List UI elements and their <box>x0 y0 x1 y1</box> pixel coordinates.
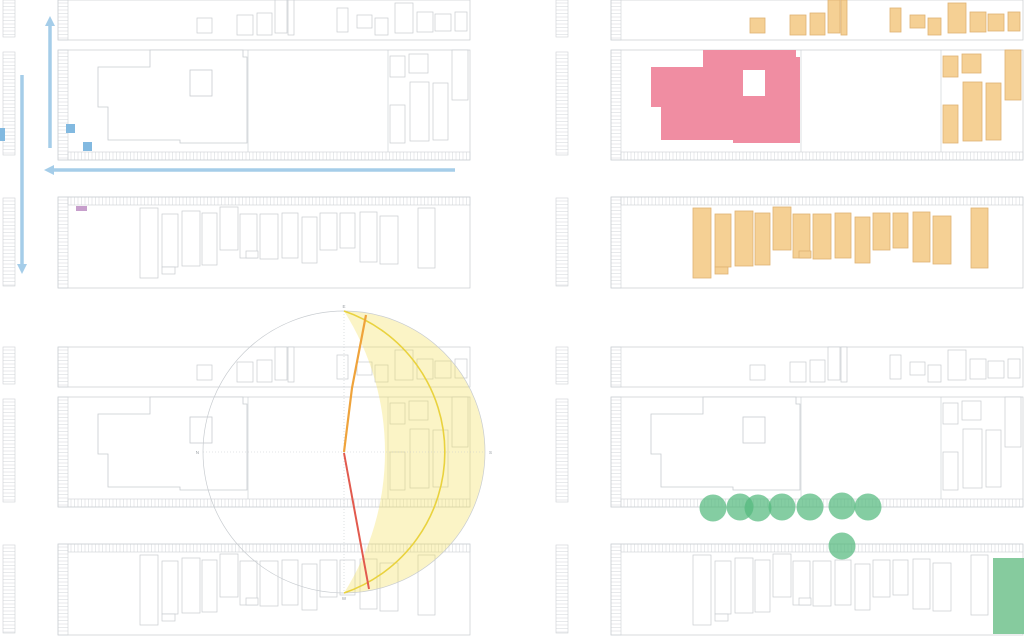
context-building <box>182 211 200 266</box>
context-building <box>410 82 429 141</box>
circulation-arrow <box>44 165 455 175</box>
compass-label: S <box>489 450 492 455</box>
context-building <box>202 213 217 265</box>
tree-marker <box>745 495 772 522</box>
context-building <box>435 14 451 31</box>
context-building <box>390 105 405 143</box>
context-building <box>237 362 253 382</box>
solar-path-map: ENSW <box>0 300 512 637</box>
tree-marker <box>829 493 856 520</box>
parking-strip <box>3 198 15 286</box>
context-building <box>943 56 958 77</box>
context-building <box>910 362 925 375</box>
context-building <box>282 213 298 258</box>
parking-strip-border <box>556 198 568 286</box>
context-building <box>971 208 988 268</box>
context-building <box>375 18 388 35</box>
context-building <box>140 208 158 278</box>
parking-strip-border <box>556 399 568 502</box>
context-building <box>841 347 847 382</box>
parking-strip-border <box>3 198 15 286</box>
tree-marker <box>797 494 824 521</box>
context-building <box>288 347 294 382</box>
parking-strip-border <box>3 545 15 633</box>
context-building <box>140 555 158 625</box>
context-building <box>452 50 468 100</box>
parking-strip <box>58 0 68 40</box>
circulation-arrow-head <box>45 16 55 26</box>
parking-strip <box>556 545 568 633</box>
context-building <box>735 558 753 613</box>
parking-strip <box>58 397 68 507</box>
context-building <box>948 3 966 33</box>
parking-strip-border <box>621 544 1023 552</box>
context-building <box>928 365 941 382</box>
parking-strip-border <box>611 347 621 387</box>
context-building <box>275 347 287 380</box>
context-building <box>835 213 851 258</box>
context-building <box>855 217 870 263</box>
context-building <box>913 212 930 262</box>
parking-strip <box>611 397 621 507</box>
context-building <box>890 8 901 32</box>
circulation-arrow <box>45 16 55 148</box>
context-building <box>693 208 711 278</box>
context-building <box>693 555 711 625</box>
building-use-map <box>512 0 1024 300</box>
context-building <box>715 561 731 614</box>
parking-strip-border <box>611 397 621 507</box>
parking-strip <box>556 52 568 155</box>
context-building <box>799 598 811 605</box>
context-building <box>360 212 377 262</box>
context-building <box>260 561 278 606</box>
context-building <box>220 207 238 250</box>
context-building <box>202 560 217 612</box>
main-building-footprint <box>651 50 800 143</box>
parking-strip <box>3 0 15 37</box>
parking-strip <box>58 197 68 288</box>
context-building <box>197 18 212 33</box>
context-building <box>828 347 840 380</box>
parking-strip-border <box>58 50 68 160</box>
context-building <box>1005 50 1021 100</box>
tree-marker <box>855 494 882 521</box>
parking-strip-border <box>621 197 1023 205</box>
parking-strip <box>621 544 1023 552</box>
parking-strip <box>68 152 470 160</box>
parking-strip <box>3 399 15 502</box>
diagram-canvas: ENSW <box>0 0 1024 637</box>
context-building <box>357 15 372 28</box>
context-building <box>320 213 337 250</box>
context-building <box>873 213 890 250</box>
context-building <box>755 560 770 612</box>
parking-strip-border <box>68 152 470 160</box>
context-building <box>988 361 1004 378</box>
parking-strip <box>611 197 621 288</box>
main-building-footprint <box>651 397 800 490</box>
entrance-marker <box>0 128 5 141</box>
parking-strip <box>58 347 68 387</box>
panel-building-use-analysis <box>512 0 1024 300</box>
base-site-plan <box>556 347 1023 635</box>
entrance-marker <box>83 142 92 151</box>
context-building <box>182 558 200 613</box>
context-building <box>910 15 925 28</box>
context-building <box>962 401 981 420</box>
context-building <box>715 267 728 274</box>
parking-strip <box>556 0 568 37</box>
context-building <box>828 0 840 33</box>
parking-strip-border <box>556 0 568 37</box>
parking-strip-border <box>611 0 621 40</box>
compass-label: E <box>342 304 345 309</box>
parking-strip-border <box>58 347 68 387</box>
context-building <box>418 208 435 268</box>
parking-strip <box>556 399 568 502</box>
main-building-footprint <box>98 50 247 143</box>
parking-strip <box>611 347 621 387</box>
main-building-courtyard <box>190 70 212 96</box>
context-building <box>835 560 851 605</box>
context-building <box>395 3 413 33</box>
context-building <box>963 82 982 141</box>
main-building-courtyard <box>190 417 212 443</box>
parking-strip <box>556 198 568 286</box>
context-building <box>943 452 958 490</box>
context-building <box>237 15 253 35</box>
context-building <box>933 563 951 611</box>
context-building <box>433 83 448 140</box>
parking-strip <box>556 347 568 384</box>
context-building <box>810 13 825 35</box>
parking-strip-border <box>58 397 68 507</box>
parking-strip <box>3 545 15 633</box>
context-building <box>873 560 890 597</box>
context-building <box>162 561 178 614</box>
main-building-courtyard <box>743 70 765 96</box>
circulation-arrow-head <box>17 264 27 274</box>
compass-label: W <box>342 596 347 601</box>
context-building <box>841 0 847 35</box>
context-building <box>810 360 825 382</box>
parking-strip <box>68 197 470 205</box>
context-building <box>735 211 753 266</box>
context-building <box>962 54 981 73</box>
context-building <box>260 214 278 259</box>
parking-strip <box>611 0 621 40</box>
context-building <box>971 555 988 615</box>
context-building <box>715 214 731 267</box>
context-building <box>855 564 870 610</box>
parking-strip <box>611 50 621 160</box>
parking-strip <box>621 197 1023 205</box>
context-building <box>773 207 791 250</box>
context-building <box>715 614 728 621</box>
landscape-map <box>512 300 1024 637</box>
context-building <box>988 14 1004 31</box>
context-building <box>257 13 272 35</box>
context-building <box>799 251 811 258</box>
context-building <box>933 216 951 264</box>
context-building <box>893 560 908 595</box>
context-building <box>162 614 175 621</box>
context-building <box>943 105 958 143</box>
main-building-courtyard <box>743 417 765 443</box>
tree-marker <box>769 494 796 521</box>
tree-marker <box>700 495 727 522</box>
context-building <box>750 365 765 380</box>
context-building <box>928 18 941 35</box>
main-building-footprint <box>98 397 247 490</box>
context-building <box>1008 359 1020 378</box>
context-building <box>162 214 178 267</box>
circulation-arrow-head <box>44 165 54 175</box>
accent-marker <box>76 206 87 211</box>
context-building <box>340 213 355 248</box>
context-building <box>417 12 433 32</box>
parking-strip-border <box>621 152 1023 160</box>
context-building <box>409 54 428 73</box>
parking-strip-border <box>556 347 568 384</box>
context-building <box>963 429 982 488</box>
context-building <box>970 12 986 32</box>
parking-strip <box>58 544 68 635</box>
context-building <box>390 56 405 77</box>
panel-landscape-trees-analysis <box>512 300 1024 637</box>
context-building <box>813 561 831 606</box>
context-building <box>948 350 966 380</box>
context-building <box>288 0 294 35</box>
context-building <box>986 83 1001 140</box>
context-building <box>943 403 958 424</box>
context-building <box>913 559 930 609</box>
context-building <box>813 214 831 259</box>
greenspace-area <box>993 558 1024 634</box>
parking-strip-border <box>58 0 68 40</box>
context-building <box>790 15 806 35</box>
tree-marker <box>829 533 856 560</box>
context-building <box>455 12 467 31</box>
circulation-map <box>0 0 512 300</box>
parking-strip-border <box>68 197 470 205</box>
compass-label: N <box>196 450 199 455</box>
context-building <box>246 598 258 605</box>
context-building <box>380 216 398 264</box>
context-building <box>357 362 372 375</box>
context-building <box>337 355 348 379</box>
context-building <box>750 18 765 33</box>
parking-strip <box>58 50 68 160</box>
context-building <box>246 251 258 258</box>
context-building <box>337 8 348 32</box>
parking-strip-border <box>556 545 568 633</box>
parking-strip-border <box>611 50 621 160</box>
context-building <box>890 355 901 379</box>
context-building <box>970 359 986 379</box>
context-building <box>197 365 212 380</box>
sunrise-line <box>344 315 366 452</box>
entrance-marker <box>66 124 75 133</box>
panel-solar-path-analysis: ENSW <box>0 300 512 637</box>
context-building <box>257 360 272 382</box>
context-building <box>755 213 770 265</box>
panel-circulation-analysis <box>0 0 512 300</box>
context-building <box>790 362 806 382</box>
parking-strip-border <box>556 52 568 155</box>
parking-strip-border <box>3 0 15 37</box>
context-building <box>162 267 175 274</box>
context-building <box>275 0 287 33</box>
circulation-arrow <box>17 75 27 274</box>
parking-strip-border <box>3 399 15 502</box>
context-building <box>986 430 1001 487</box>
base-site-plan <box>3 0 470 288</box>
parking-strip <box>611 544 621 635</box>
base-site-plan <box>556 0 1023 288</box>
context-building <box>1008 12 1020 31</box>
context-building <box>1005 397 1021 447</box>
parking-strip-border <box>3 347 15 384</box>
context-building <box>220 554 238 597</box>
context-building <box>893 213 908 248</box>
context-building <box>302 217 317 263</box>
context-building <box>773 554 791 597</box>
parking-strip <box>621 152 1023 160</box>
parking-strip <box>3 347 15 384</box>
